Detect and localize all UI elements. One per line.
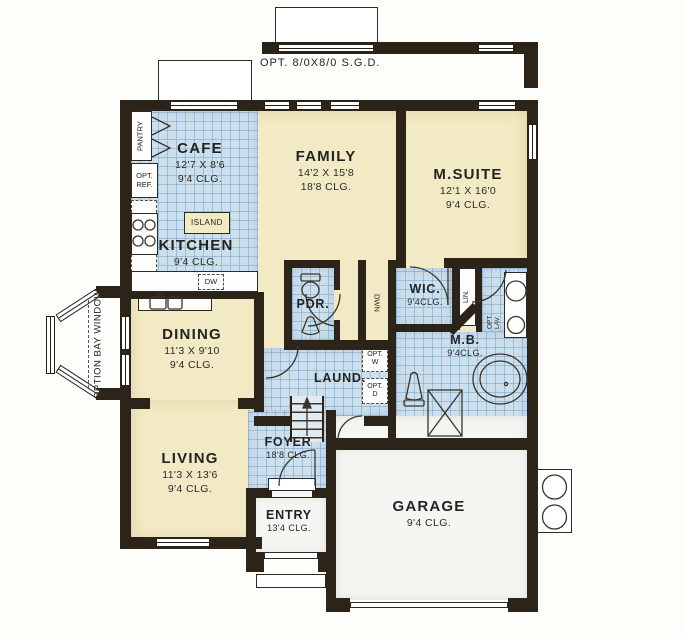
room-ceiling: 9'4 CLG. xyxy=(148,256,244,268)
room-dims: 14'2 X 15'8 xyxy=(276,167,376,179)
room-dims: 12'7 X 8'6 xyxy=(152,159,248,171)
wall-segment xyxy=(284,260,338,268)
sliding-glass-door xyxy=(278,44,374,52)
room-name: FOYER xyxy=(250,435,326,449)
room-ceiling: 18'8 CLG. xyxy=(250,450,326,460)
wall-segment xyxy=(326,598,350,612)
sliding-glass-door xyxy=(170,101,238,110)
wall-segment xyxy=(358,260,366,344)
garage-door xyxy=(350,602,508,608)
wall-segment xyxy=(364,416,396,426)
kitchen-sink-counter xyxy=(131,271,258,292)
wall-segment xyxy=(527,100,538,612)
room-name: ENTRY xyxy=(252,508,326,522)
pantry-label: PANTRY xyxy=(133,112,149,160)
entry-stoop xyxy=(268,478,316,491)
wall-segment xyxy=(284,340,396,350)
porch-column xyxy=(318,552,336,572)
room-name: M.B. xyxy=(438,333,492,347)
window xyxy=(121,354,130,386)
room-label-wic: WIC. 9'4CLG. xyxy=(398,282,452,307)
room-name: FAMILY xyxy=(276,148,376,165)
room-name: WIC. xyxy=(398,282,452,296)
wall-segment xyxy=(336,438,527,450)
room-ceiling: 9'4CLG. xyxy=(398,297,452,307)
room-name: KITCHEN xyxy=(148,237,244,254)
entry-step xyxy=(264,552,318,559)
wall-segment xyxy=(120,292,262,299)
room-label-living: LIVING 11'3 X 13'6 9'4 CLG. xyxy=(140,450,240,495)
room-ceiling: 9'4 CLG. xyxy=(142,359,242,371)
room-name: PDR. xyxy=(291,297,335,311)
wall-segment xyxy=(452,266,460,330)
wall-segment xyxy=(254,292,264,412)
wall-segment xyxy=(334,260,340,290)
room-name: LIVING xyxy=(140,450,240,467)
room-name: LAUND. xyxy=(300,371,380,385)
porch-column xyxy=(246,552,264,572)
floor-plan: OPT. 8/0X8/0 S.G.D. OPTION BAY WINDOW PA… xyxy=(0,0,684,634)
room-label-dining: DINING 11'3 X 9'10 9'4 CLG. xyxy=(142,326,242,371)
room-name: DINING xyxy=(142,326,242,343)
room-name: GARAGE xyxy=(379,498,479,515)
dwn-closet-label: DWN xyxy=(369,282,383,324)
room-dims: 12'1 X 16'0 xyxy=(418,185,518,197)
room-label-kitchen: KITCHEN 9'4 CLG. xyxy=(148,237,244,268)
bay-window-pane xyxy=(46,316,55,374)
bay-window-dashed-line xyxy=(88,300,89,388)
wall-segment xyxy=(476,266,482,332)
option-bay-window-note: OPTION BAY WINDOW xyxy=(92,288,106,400)
room-label-foyer: FOYER 18'8 CLG. xyxy=(250,435,326,460)
linen-label: LIN. xyxy=(461,272,473,322)
room-label-laund: LAUND. xyxy=(300,371,380,385)
wall-segment xyxy=(396,324,454,332)
wall-segment xyxy=(508,598,538,612)
room-name: M.SUITE xyxy=(418,166,518,183)
room-label-family: FAMILY 14'2 X 15'8 18'8 CLG. xyxy=(276,148,376,193)
door-opening xyxy=(406,258,444,268)
room-label-garage: GARAGE 9'4 CLG. xyxy=(379,498,479,529)
room-label-msuite: M.SUITE 12'1 X 16'0 9'4 CLG. xyxy=(418,166,518,211)
window xyxy=(156,538,210,547)
kitchen-island: ISLAND xyxy=(184,212,230,234)
wall-segment xyxy=(120,398,150,409)
window xyxy=(121,316,130,350)
wall-segment xyxy=(524,54,538,88)
window xyxy=(330,101,360,110)
mb-vanity-counter xyxy=(504,272,527,338)
room-ceiling: 18'8 CLG. xyxy=(276,181,376,193)
window xyxy=(478,44,514,52)
room-dims: 11'3 X 9'10 xyxy=(142,345,242,357)
room-label-mb: M.B. 9'4CLG. xyxy=(438,333,492,358)
room-ceiling: 13'4 CLG. xyxy=(252,523,326,533)
room-ceiling: 9'4 CLG. xyxy=(152,173,248,185)
wall-segment xyxy=(396,111,406,258)
room-dims: 11'3 X 13'6 xyxy=(140,469,240,481)
entry-step xyxy=(256,574,326,588)
room-label-entry: ENTRY 13'4 CLG. xyxy=(252,508,326,533)
room-ceiling: 9'4CLG. xyxy=(438,348,492,358)
room-ceiling: 9'4 CLG. xyxy=(140,483,240,495)
window xyxy=(478,101,516,110)
room-ceiling: 9'4 CLG. xyxy=(418,199,518,211)
window xyxy=(528,124,537,160)
ac-equipment-pad xyxy=(537,469,572,533)
wall-segment xyxy=(326,410,336,612)
room-ceiling: 9'4 CLG. xyxy=(379,517,479,529)
room-label-pdr: PDR. xyxy=(291,297,335,311)
dishwasher: DW xyxy=(198,274,224,290)
room-label-cafe: CAFE 12'7 X 8'6 9'4 CLG. xyxy=(152,140,248,185)
window xyxy=(296,101,322,110)
window xyxy=(264,101,290,110)
optional-patio-slab-left xyxy=(158,60,252,102)
wall-segment xyxy=(388,260,396,440)
wall-segment xyxy=(254,416,292,426)
opt-sgd-note: OPT. 8/0X8/0 S.G.D. xyxy=(260,57,381,69)
room-name: CAFE xyxy=(152,140,248,157)
